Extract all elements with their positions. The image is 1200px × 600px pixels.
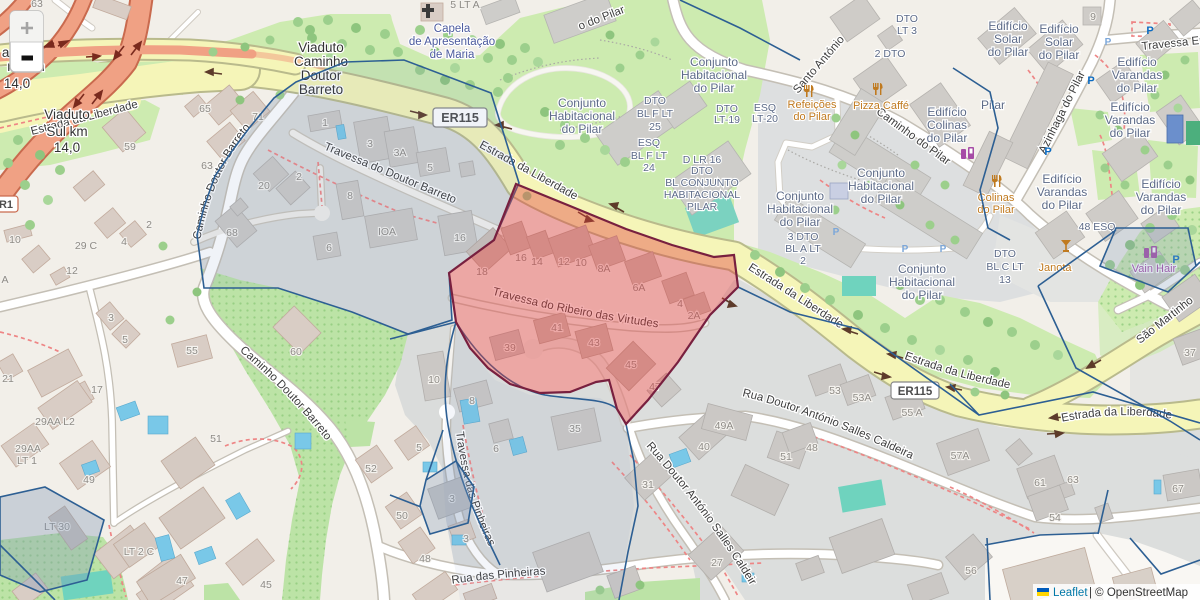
svg-text:49A: 49A [715,420,734,432]
svg-text:Varandas: Varandas [1112,68,1162,82]
svg-text:P: P [833,227,840,238]
svg-text:Pizza Caffé: Pizza Caffé [853,100,909,112]
svg-text:49: 49 [83,474,95,486]
svg-text:Conjunto: Conjunto [690,55,738,69]
svg-text:P: P [1087,75,1094,87]
svg-text:48 ESQ: 48 ESQ [1079,221,1116,233]
svg-text:do Pilar: do Pilar [902,288,943,302]
svg-text:P: P [1044,146,1051,158]
svg-text:2 DTO: 2 DTO [875,48,906,60]
svg-text:Refeições: Refeições [788,99,837,111]
svg-text:3: 3 [108,312,114,324]
svg-text:do Pilar: do Pilar [988,45,1029,59]
svg-text:DTO: DTO [994,248,1016,260]
svg-text:27: 27 [711,557,723,569]
svg-text:Sul km: Sul km [46,124,87,139]
svg-text:24: 24 [643,162,655,174]
svg-text:29 C: 29 C [75,240,98,252]
svg-text:BL F LT: BL F LT [637,108,674,120]
svg-text:ER115: ER115 [898,386,933,398]
svg-text:Varandas: Varandas [1105,113,1155,127]
svg-text:25: 25 [649,121,661,133]
svg-text:Conjunto: Conjunto [558,96,606,110]
svg-text:Viaduto: Viaduto [298,40,344,55]
svg-text:57A: 57A [951,450,970,462]
svg-text:53A: 53A [853,392,872,404]
svg-text:| © OpenStreetMap: | © OpenStreetMap [1089,587,1188,599]
svg-text:Janota: Janota [1038,262,1072,274]
svg-text:DTO: DTO [644,95,666,107]
svg-text:17: 17 [91,384,103,396]
svg-text:Colinas: Colinas [927,118,967,132]
svg-text:5: 5 [416,442,422,454]
svg-text:53: 53 [829,385,841,397]
svg-text:P: P [1105,37,1112,48]
svg-text:65: 65 [199,103,211,115]
svg-text:BL F LT: BL F LT [631,150,668,162]
svg-text:do Pilar: do Pilar [694,81,735,95]
svg-text:LT 3: LT 3 [897,25,917,37]
svg-text:40: 40 [698,441,710,453]
svg-text:do Pilar: do Pilar [780,215,821,229]
svg-text:56: 56 [965,565,977,577]
svg-text:Conjunto: Conjunto [776,189,824,203]
svg-text:de Apresentação: de Apresentação [409,36,495,48]
svg-text:do Pilar: do Pilar [1117,81,1158,95]
svg-text:do Pilar: do Pilar [1039,48,1080,62]
svg-text:DTO: DTO [896,13,918,25]
svg-text:10: 10 [9,234,21,246]
svg-text:2: 2 [800,255,806,267]
svg-text:51: 51 [210,433,222,445]
svg-text:Edifício: Edifício [927,105,967,119]
svg-text:Conjunto: Conjunto [898,262,946,276]
svg-text:Varandas: Varandas [1037,185,1087,199]
svg-text:DTO: DTO [691,165,713,177]
svg-text:do Pilar: do Pilar [562,122,603,136]
svg-text:67: 67 [1172,483,1184,495]
svg-text:3 DTO: 3 DTO [788,231,819,243]
svg-text:LT 1: LT 1 [17,455,37,467]
svg-text:63: 63 [1067,474,1079,486]
svg-text:2: 2 [146,219,152,231]
svg-text:Edifício: Edifício [1117,55,1157,69]
svg-text:12: 12 [66,265,78,277]
svg-text:61: 61 [1034,477,1046,489]
svg-text:29AA L2: 29AA L2 [35,416,75,428]
svg-text:10: 10 [428,374,440,386]
svg-text:do Pilar: do Pilar [1042,198,1083,212]
svg-text:LT 2 C: LT 2 C [124,546,155,558]
svg-text:P: P [940,244,947,255]
svg-text:A: A [1,274,8,286]
svg-text:63: 63 [201,160,213,172]
svg-text:29AA: 29AA [15,443,41,455]
svg-text:48: 48 [806,442,818,454]
svg-text:do Pilar: do Pilar [1141,203,1182,217]
svg-text:52: 52 [365,463,377,475]
svg-text:Solar: Solar [1045,35,1073,49]
svg-text:Habitacional: Habitacional [889,275,955,289]
svg-text:LT-20: LT-20 [752,113,778,125]
svg-text:do Pilar: do Pilar [793,111,831,123]
svg-text:60: 60 [290,346,302,358]
svg-text:55 A: 55 A [901,407,922,419]
svg-text:Leaflet: Leaflet [1053,587,1088,599]
svg-text:do Pilar: do Pilar [927,131,968,145]
svg-text:14,0: 14,0 [4,76,30,91]
svg-text:ESQ: ESQ [638,137,660,149]
svg-text:Edifício: Edifício [1039,22,1079,36]
svg-text:14,0: 14,0 [54,140,80,155]
svg-text:4: 4 [121,236,127,248]
svg-text:5 LT A: 5 LT A [450,0,479,11]
svg-text:51: 51 [780,451,792,463]
svg-text:Edifício: Edifício [1141,177,1181,191]
svg-text:do Pilar: do Pilar [861,192,902,206]
svg-text:HABITACIONAL: HABITACIONAL [664,189,740,201]
svg-text:BL A LT: BL A LT [785,243,821,255]
svg-text:Habitacional: Habitacional [848,179,914,193]
svg-text:BL C LT: BL C LT [986,261,1024,273]
svg-text:Habitacional: Habitacional [681,68,747,82]
svg-text:Habitacional: Habitacional [549,109,615,123]
svg-text:31: 31 [642,479,654,491]
svg-text:Edifício: Edifício [988,19,1028,33]
svg-text:Solar: Solar [994,32,1022,46]
svg-text:P: P [902,244,909,255]
svg-text:Conjunto: Conjunto [857,166,905,180]
svg-text:Habitacional: Habitacional [767,202,833,216]
svg-text:Edifício: Edifício [1042,172,1082,186]
svg-text:13: 13 [999,274,1011,286]
svg-text:Edifício: Edifício [1110,100,1150,114]
svg-text:48: 48 [419,553,431,565]
svg-text:Varandas: Varandas [1136,190,1186,204]
svg-text:LT-19: LT-19 [714,114,740,126]
svg-text:BL CONJUNTO: BL CONJUNTO [665,177,739,189]
svg-text:5: 5 [122,334,128,346]
svg-text:PILAR: PILAR [687,201,718,213]
svg-text:63: 63 [31,0,43,10]
svg-text:de Maria: de Maria [430,49,475,61]
svg-text:37: 37 [1184,347,1196,359]
svg-text:45: 45 [260,579,272,591]
svg-text:59: 59 [124,141,136,153]
svg-text:P: P [1146,25,1153,37]
svg-text:R1: R1 [0,199,13,211]
svg-text:9: 9 [1090,11,1096,23]
svg-text:Viaduto: Viaduto [44,107,90,122]
svg-text:50: 50 [396,510,408,522]
svg-text:47: 47 [176,575,188,587]
svg-text:55: 55 [186,345,198,357]
svg-text:do Pilar: do Pilar [1110,126,1151,140]
svg-text:Capela: Capela [434,23,471,35]
svg-text:21: 21 [2,373,14,385]
svg-text:54: 54 [1049,512,1061,524]
